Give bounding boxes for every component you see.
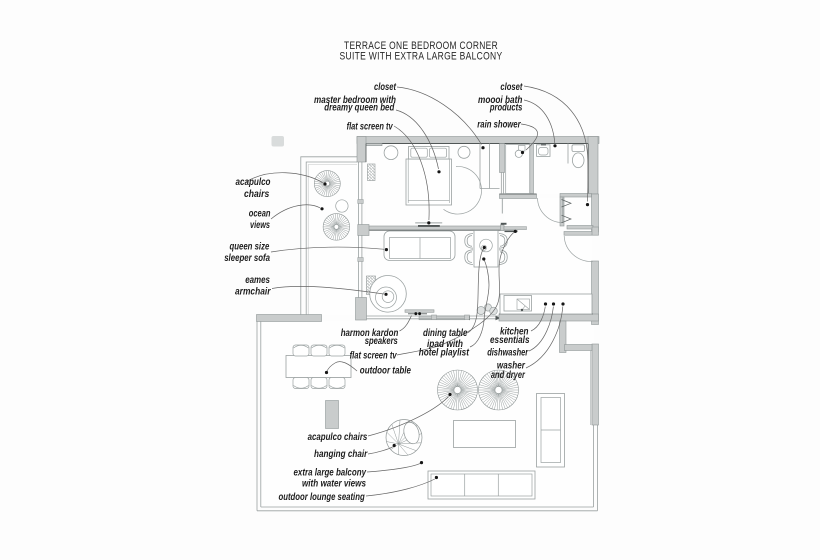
svg-text:outdoor lounge seating: outdoor lounge seating <box>279 492 365 503</box>
svg-text:with water views: with water views <box>302 478 366 489</box>
svg-text:flat screen tv: flat screen tv <box>347 121 394 132</box>
svg-text:sleeper sofa: sleeper sofa <box>224 253 270 264</box>
svg-text:extra large balcony: extra large balcony <box>294 467 367 478</box>
svg-text:SUITE WITH EXTRA LARGE BALCONY: SUITE WITH EXTRA LARGE BALCONY <box>340 50 503 62</box>
svg-text:dining table: dining table <box>423 328 468 339</box>
svg-text:and dryer: and dryer <box>491 370 526 381</box>
svg-text:essentials: essentials <box>490 335 530 346</box>
svg-text:hotel playlist: hotel playlist <box>419 348 470 359</box>
svg-text:armchair: armchair <box>235 286 271 297</box>
svg-text:products: products <box>489 103 523 114</box>
svg-text:chairs: chairs <box>244 189 270 200</box>
svg-text:queen size: queen size <box>230 242 270 253</box>
svg-text:speakers: speakers <box>365 336 398 347</box>
svg-text:eames: eames <box>245 275 270 286</box>
svg-text:rain shower: rain shower <box>477 120 521 131</box>
svg-text:acapulco: acapulco <box>236 177 271 188</box>
svg-text:outdoor table: outdoor table <box>360 366 412 377</box>
svg-text:views: views <box>250 220 270 231</box>
svg-text:acapulco chairs: acapulco chairs <box>308 432 368 443</box>
svg-text:closet: closet <box>500 82 523 93</box>
svg-text:dreamy queen bed: dreamy queen bed <box>324 103 395 114</box>
svg-text:flat screen tv: flat screen tv <box>350 351 398 362</box>
svg-text:hanging chair: hanging chair <box>314 449 368 460</box>
svg-text:dishwasher: dishwasher <box>487 348 529 359</box>
svg-text:closet: closet <box>374 82 397 93</box>
svg-text:ocean: ocean <box>249 208 271 219</box>
